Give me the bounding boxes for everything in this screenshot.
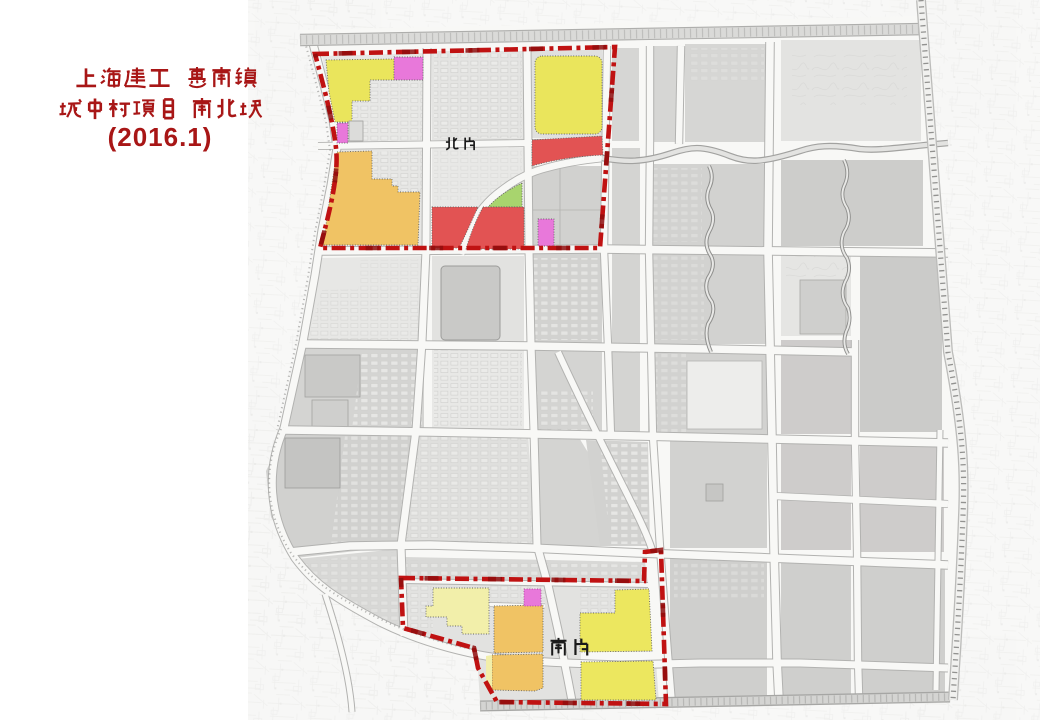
svg-text:(2016.1): (2016.1)	[108, 122, 213, 152]
